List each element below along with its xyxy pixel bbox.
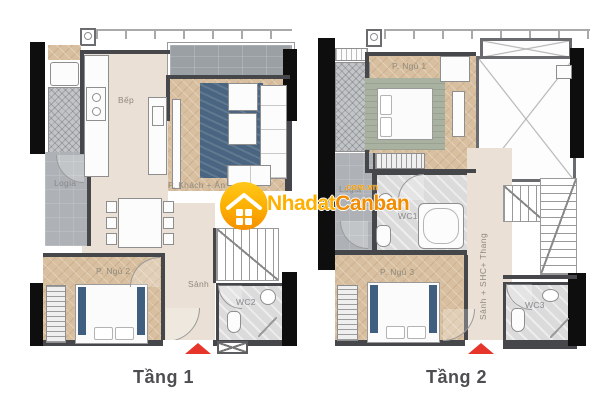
- bed-runner: [137, 287, 145, 335]
- pillow: [386, 326, 405, 339]
- wc2-shower-corner: [258, 317, 277, 337]
- label-bedroom1: P. Ngủ 1: [392, 61, 426, 71]
- wc1-bathtub: [418, 203, 464, 249]
- wc3-toilet-icon: [511, 308, 525, 332]
- column: [80, 28, 96, 46]
- black-wall: [570, 48, 584, 158]
- bedroom1-cabinet: [440, 56, 470, 82]
- stairs-lower-flight: [540, 178, 577, 275]
- wall: [503, 275, 577, 279]
- logia2-vent: [335, 48, 368, 61]
- black-wall: [30, 283, 43, 346]
- black-wall: [568, 273, 586, 346]
- logia-shelf: [48, 45, 81, 60]
- bed-bedroom3: [367, 282, 440, 343]
- wall: [80, 50, 170, 54]
- stairs-upper-flight: [503, 185, 545, 222]
- logia-drying-area: [48, 87, 83, 153]
- dining-chair: [106, 233, 117, 245]
- burner-icon: [92, 107, 101, 116]
- stove: [86, 87, 106, 121]
- dining-chair: [106, 217, 117, 229]
- kitchen-island: [148, 97, 167, 175]
- ac-unit: [556, 65, 572, 79]
- black-wall: [30, 42, 45, 154]
- label-wc3: WC3: [525, 300, 545, 310]
- pillow: [407, 326, 426, 339]
- bed-runner: [78, 287, 86, 335]
- brand-part2: Canban: [335, 192, 409, 215]
- column: [366, 29, 382, 47]
- wardrobe: [46, 285, 66, 343]
- shaft-box: [217, 341, 248, 354]
- bed-bedroom1: [377, 88, 433, 140]
- dining-chair: [163, 217, 174, 229]
- dining-chair: [163, 201, 174, 213]
- bedroom1-desk: [452, 91, 465, 137]
- balcony-rail: [96, 29, 292, 39]
- label-hall2: Sảnh + SHC+ Thang: [478, 208, 488, 320]
- coffee-table: [228, 113, 257, 145]
- wall: [168, 75, 290, 79]
- wardrobe: [337, 285, 358, 341]
- dining-chair: [106, 201, 117, 213]
- wall: [213, 228, 216, 283]
- dining-chair: [163, 233, 174, 245]
- bed-bedroom2: [75, 284, 148, 344]
- label-living: P. Khách + Ăn: [168, 180, 225, 190]
- stairs-floor1: [216, 228, 279, 281]
- black-wall: [318, 38, 335, 270]
- dining-table: [118, 198, 162, 248]
- bed-runner: [370, 285, 378, 333]
- column-circle-icon: [370, 33, 378, 41]
- column-circle-icon: [84, 32, 92, 40]
- floor1-caption: Tầng 1: [30, 367, 297, 388]
- wc2-toilet-icon: [227, 311, 241, 333]
- wall: [335, 250, 467, 255]
- label-bedroom2: P. Ngủ 2: [96, 266, 130, 276]
- washing-machine: [50, 62, 79, 86]
- floor2-caption: Tầng 2: [318, 367, 595, 388]
- floorplan-image: { "watermark": { "brand_part1": "Nhadat"…: [0, 0, 600, 406]
- pillow: [94, 327, 113, 340]
- label-bedroom3: P. Ngủ 3: [380, 267, 414, 277]
- black-wall: [282, 272, 297, 346]
- pillow: [380, 117, 392, 137]
- label-kitchen: Bếp: [118, 95, 134, 105]
- wall: [43, 253, 165, 257]
- tv-console: [172, 99, 181, 189]
- wall: [368, 169, 476, 173]
- label-hall1: Sảnh: [188, 279, 209, 289]
- entry-arrow-icon: [468, 343, 494, 354]
- brand-part1: Nhadat: [267, 192, 335, 215]
- brand-logo-icon: [219, 181, 269, 231]
- wc3-shower-corner: [550, 318, 569, 338]
- brand-wordmark: NhadatCanban: [267, 192, 409, 216]
- pillow: [115, 327, 134, 340]
- wc2-sink-icon: [260, 289, 276, 305]
- burner-icon: [92, 93, 101, 102]
- wc1-toilet-icon: [376, 225, 391, 247]
- bed-runner: [429, 285, 437, 333]
- sink-icon: [152, 106, 164, 126]
- wall: [161, 257, 165, 343]
- brand-domain: .com.vn: [344, 182, 378, 192]
- wardrobe: [375, 153, 425, 169]
- label-logia1: Logia: [54, 178, 76, 188]
- wall: [503, 340, 568, 346]
- label-wc2: WC2: [236, 297, 256, 307]
- coffee-table: [228, 83, 258, 111]
- entry-arrow-icon: [185, 343, 211, 354]
- pillow: [380, 95, 392, 115]
